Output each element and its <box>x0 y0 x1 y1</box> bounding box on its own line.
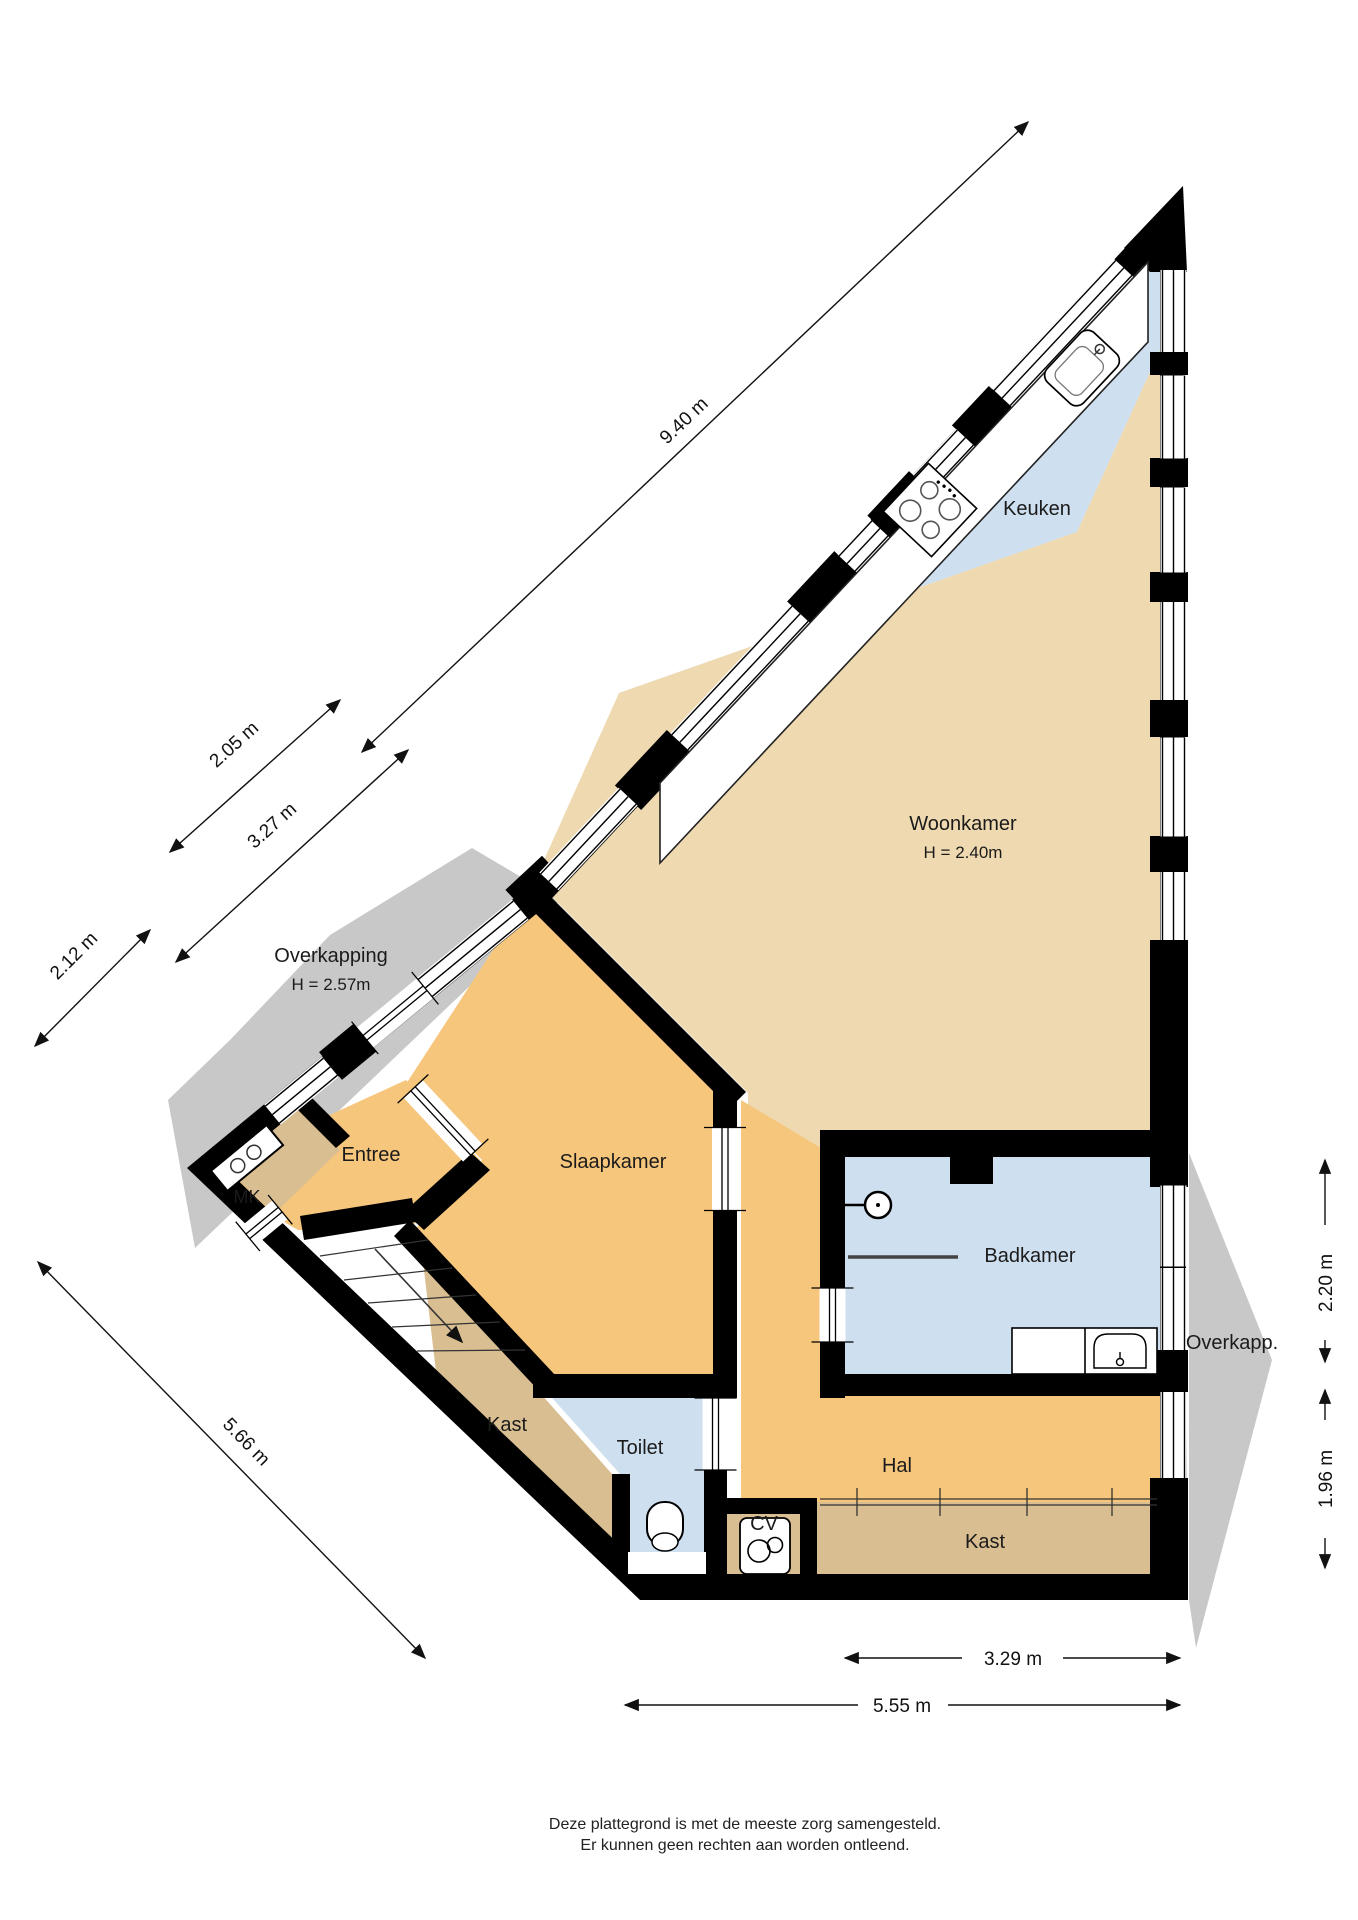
overkapping-label: Overkapping <box>274 945 387 967</box>
svg-text:1.96 m: 1.96 m <box>1316 1450 1337 1508</box>
dim-1-96: 1.96 m <box>1316 1390 1337 1568</box>
wall-badkamer-top <box>820 1130 1160 1157</box>
overkapp-right-label: Overkapp. <box>1186 1332 1278 1354</box>
window <box>1161 602 1187 700</box>
wall-toilet-right <box>704 1470 727 1574</box>
washbasin-unit-icon <box>1012 1328 1157 1374</box>
toilet-slab <box>628 1552 706 1574</box>
entree-label: Entree <box>342 1144 401 1166</box>
wall-slaapkamer-right-a <box>713 1088 737 1127</box>
window <box>1161 376 1187 459</box>
wall-slaapkamer-right-b <box>713 1210 737 1398</box>
svg-text:3.27 m: 3.27 m <box>244 799 301 853</box>
wall-cv-top <box>727 1498 807 1514</box>
window <box>1161 1268 1187 1350</box>
toilet-label: Toilet <box>617 1437 664 1459</box>
wall-cv-right <box>800 1498 817 1574</box>
toilet-bowl-icon <box>647 1502 683 1551</box>
svg-text:2.20 m: 2.20 m <box>1316 1254 1337 1312</box>
dim-2-12: 2.12 m <box>35 928 150 1046</box>
svg-text:9.40 m: 9.40 m <box>656 393 713 448</box>
window <box>1161 1392 1187 1478</box>
badkamer-label: Badkamer <box>984 1245 1075 1267</box>
wall-badkamer-left-a <box>820 1157 845 1288</box>
window <box>1161 270 1187 352</box>
floor-plan-svg: Keuken Woonkamer H = 2.40m Overkapping H… <box>0 0 1358 1920</box>
kast-left-label: Kast <box>487 1414 527 1436</box>
wall-badkamer-duct <box>950 1157 993 1184</box>
svg-text:2.12 m: 2.12 m <box>46 928 102 984</box>
woonkamer-height-label: H = 2.40m <box>924 843 1003 862</box>
window <box>1161 488 1187 573</box>
slaapkamer-label: Slaapkamer <box>560 1151 667 1173</box>
dim-3-29: 3.29 m <box>845 1649 1180 1670</box>
disclaimer-line1: Deze plattegrond is met de meeste zorg s… <box>0 1815 1358 1836</box>
dim-2-20: 2.20 m <box>1316 1160 1337 1362</box>
woonkamer-label: Woonkamer <box>909 813 1017 835</box>
svg-text:2.05 m: 2.05 m <box>206 718 263 772</box>
window <box>1161 738 1187 837</box>
svg-text:5.66 m: 5.66 m <box>218 1414 274 1470</box>
wall-badkamer-bottom <box>831 1374 1160 1396</box>
hal-label: Hal <box>882 1455 912 1477</box>
svg-text:5.55 m: 5.55 m <box>873 1696 931 1717</box>
dim-5-55: 5.55 m <box>625 1696 1180 1717</box>
cv-label: CV <box>750 1513 778 1535</box>
window <box>1161 1186 1187 1267</box>
floorplan-page: Keuken Woonkamer H = 2.40m Overkapping H… <box>0 0 1358 1920</box>
keuken-label: Keuken <box>1003 498 1071 520</box>
disclaimer-line2: Er kunnen geen rechten aan worden ontlee… <box>0 1836 1358 1857</box>
disclaimer: Deze plattegrond is met de meeste zorg s… <box>0 1815 1358 1857</box>
window <box>1161 872 1187 940</box>
overkapping-right-area <box>1189 1153 1272 1648</box>
svg-text:3.29 m: 3.29 m <box>984 1649 1042 1670</box>
mk-label: MK <box>234 1187 261 1207</box>
wall-slaapkamer-bottom <box>533 1374 737 1398</box>
kast-bottom-label: Kast <box>965 1531 1005 1553</box>
overkapping-height-label: H = 2.57m <box>292 975 371 994</box>
